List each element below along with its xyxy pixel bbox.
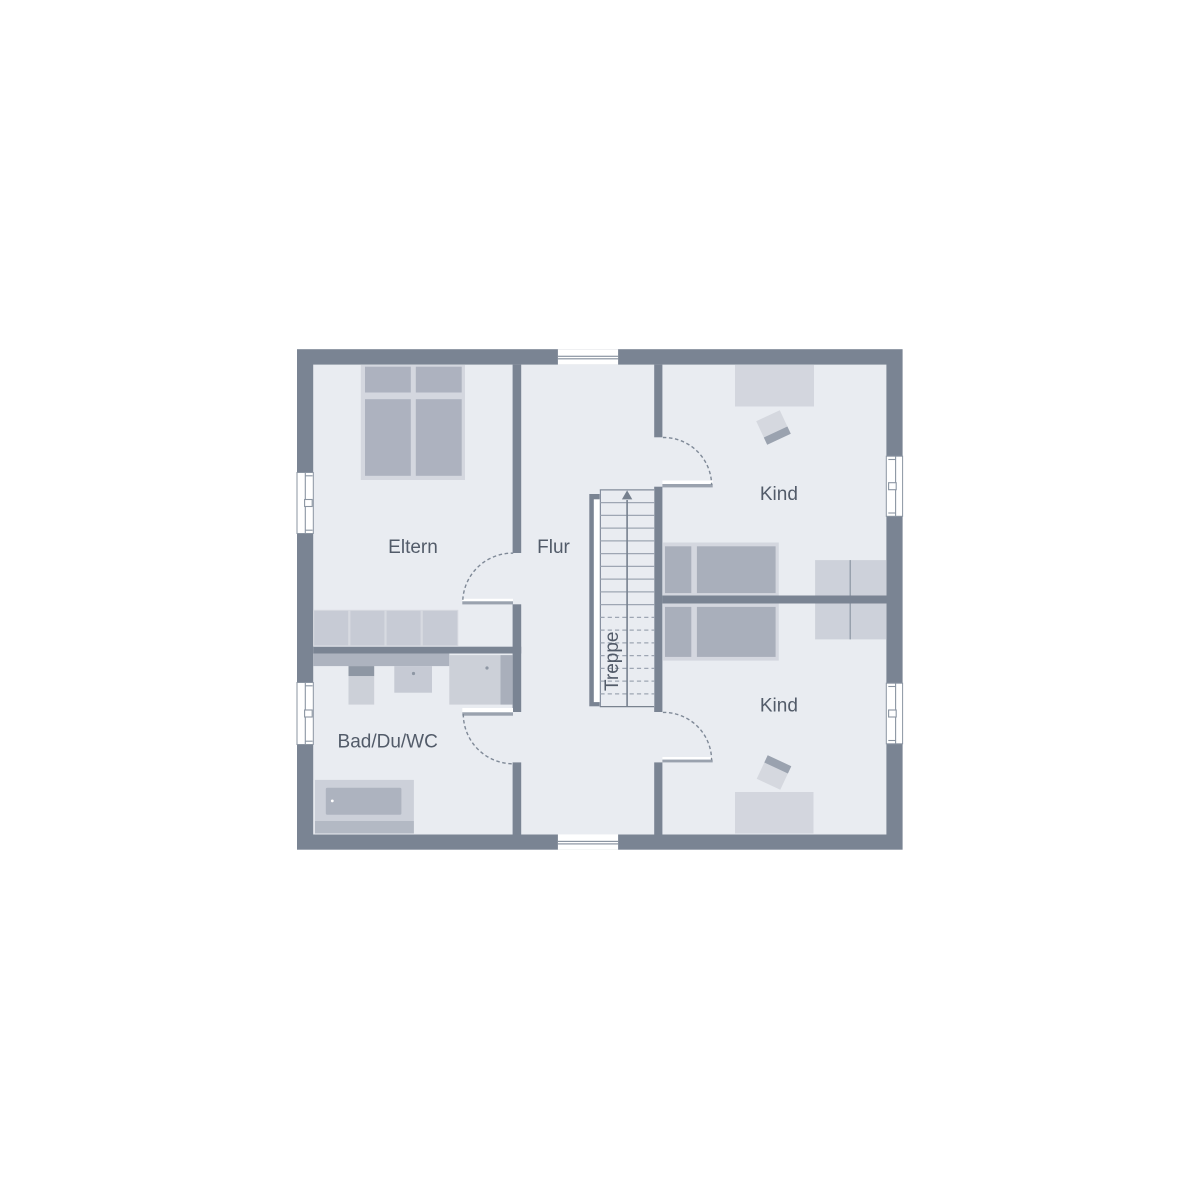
svg-text:Treppe: Treppe xyxy=(602,632,623,692)
svg-text:Kind: Kind xyxy=(760,695,798,716)
svg-text:Flur: Flur xyxy=(537,537,570,558)
svg-text:Bad/Du/WC: Bad/Du/WC xyxy=(338,732,438,753)
svg-text:Kind: Kind xyxy=(760,484,798,505)
svg-text:Eltern: Eltern xyxy=(388,537,438,558)
